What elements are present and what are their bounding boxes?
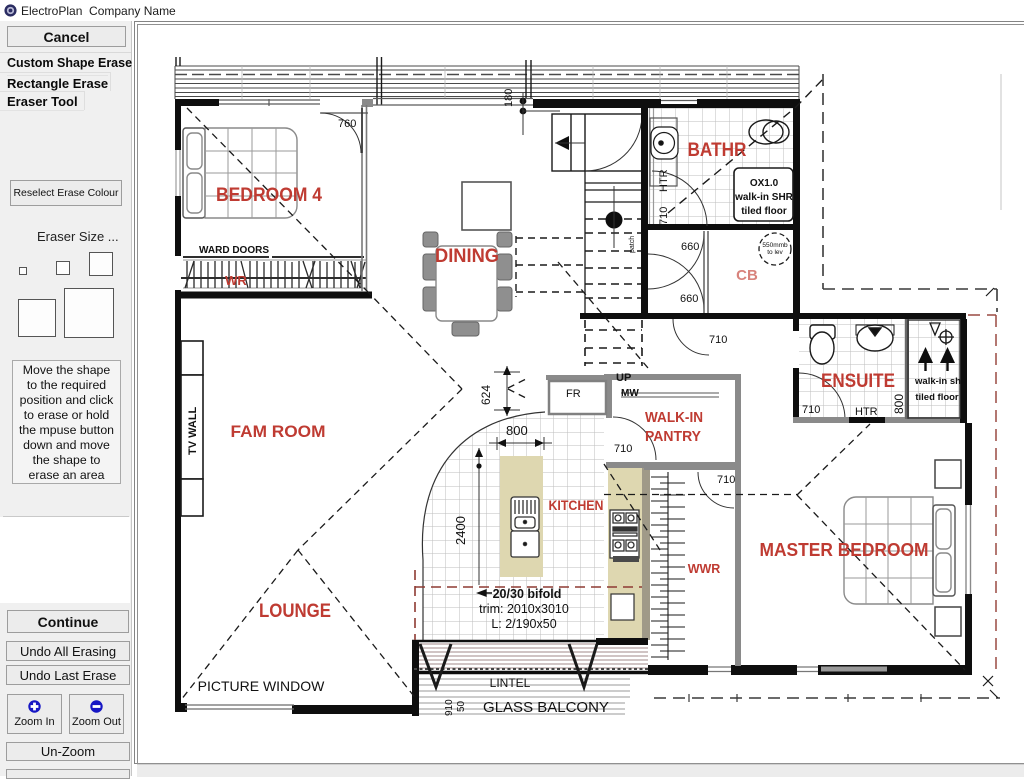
svg-text:20/30 bifold: 20/30 bifold — [493, 587, 562, 601]
svg-text:800: 800 — [506, 423, 528, 438]
svg-text:BEDROOM 4: BEDROOM 4 — [216, 185, 322, 206]
svg-text:710: 710 — [802, 404, 820, 416]
svg-text:710: 710 — [614, 443, 632, 455]
svg-text:walk-in SHR: walk-in SHR — [734, 192, 794, 203]
svg-text:710: 710 — [658, 207, 670, 225]
svg-text:180: 180 — [503, 89, 515, 107]
svg-text:trim: 2010x3010: trim: 2010x3010 — [479, 602, 569, 616]
svg-text:CB: CB — [736, 267, 758, 284]
svg-text:tiled floor: tiled floor — [915, 392, 959, 403]
svg-text:tiled floor: tiled floor — [741, 206, 787, 217]
svg-text:PICTURE WINDOW: PICTURE WINDOW — [198, 678, 326, 694]
svg-text:WR: WR — [225, 273, 247, 288]
svg-text:WALK-IN: WALK-IN — [645, 410, 703, 426]
svg-text:660: 660 — [681, 241, 699, 253]
svg-text:DINING: DINING — [435, 246, 499, 267]
svg-text:KITCHEN: KITCHEN — [549, 498, 604, 513]
svg-text:HTR: HTR — [658, 169, 670, 192]
svg-text:FR: FR — [566, 388, 581, 400]
svg-text:624: 624 — [479, 385, 493, 405]
svg-text:LINTEL: LINTEL — [490, 676, 531, 690]
svg-text:to lev: to lev — [767, 249, 783, 256]
svg-text:760: 760 — [338, 118, 356, 130]
svg-text:800: 800 — [892, 394, 906, 414]
svg-text:LOUNGE: LOUNGE — [259, 601, 331, 622]
svg-text:BATHR: BATHR — [688, 140, 747, 161]
svg-text:50: 50 — [456, 700, 467, 712]
svg-text:550mmb: 550mmb — [762, 242, 788, 249]
svg-text:2400: 2400 — [453, 516, 468, 545]
svg-text:710: 710 — [717, 474, 735, 486]
svg-text:MW: MW — [621, 388, 639, 399]
svg-text:FAM ROOM: FAM ROOM — [231, 422, 326, 441]
svg-text:WARD DOORS: WARD DOORS — [199, 245, 269, 256]
svg-text:710: 710 — [709, 334, 727, 346]
svg-text:910: 910 — [444, 699, 455, 716]
svg-text:ENSUITE: ENSUITE — [821, 371, 895, 392]
svg-text:L: 2/190x50: L: 2/190x50 — [491, 617, 556, 631]
svg-text:HTR: HTR — [855, 406, 878, 418]
svg-text:660: 660 — [680, 293, 698, 305]
svg-text:patch: patch — [629, 236, 636, 253]
svg-text:walk-in sh: walk-in sh — [914, 376, 961, 387]
svg-text:OX1.0: OX1.0 — [750, 178, 779, 189]
svg-text:UP: UP — [616, 372, 631, 384]
svg-text:MASTER BEDROOM: MASTER BEDROOM — [760, 540, 929, 560]
svg-text:WWR: WWR — [688, 562, 721, 576]
svg-text:PANTRY: PANTRY — [645, 429, 701, 445]
svg-text:TV WALL: TV WALL — [187, 406, 199, 455]
svg-text:GLASS BALCONY: GLASS BALCONY — [483, 699, 609, 716]
